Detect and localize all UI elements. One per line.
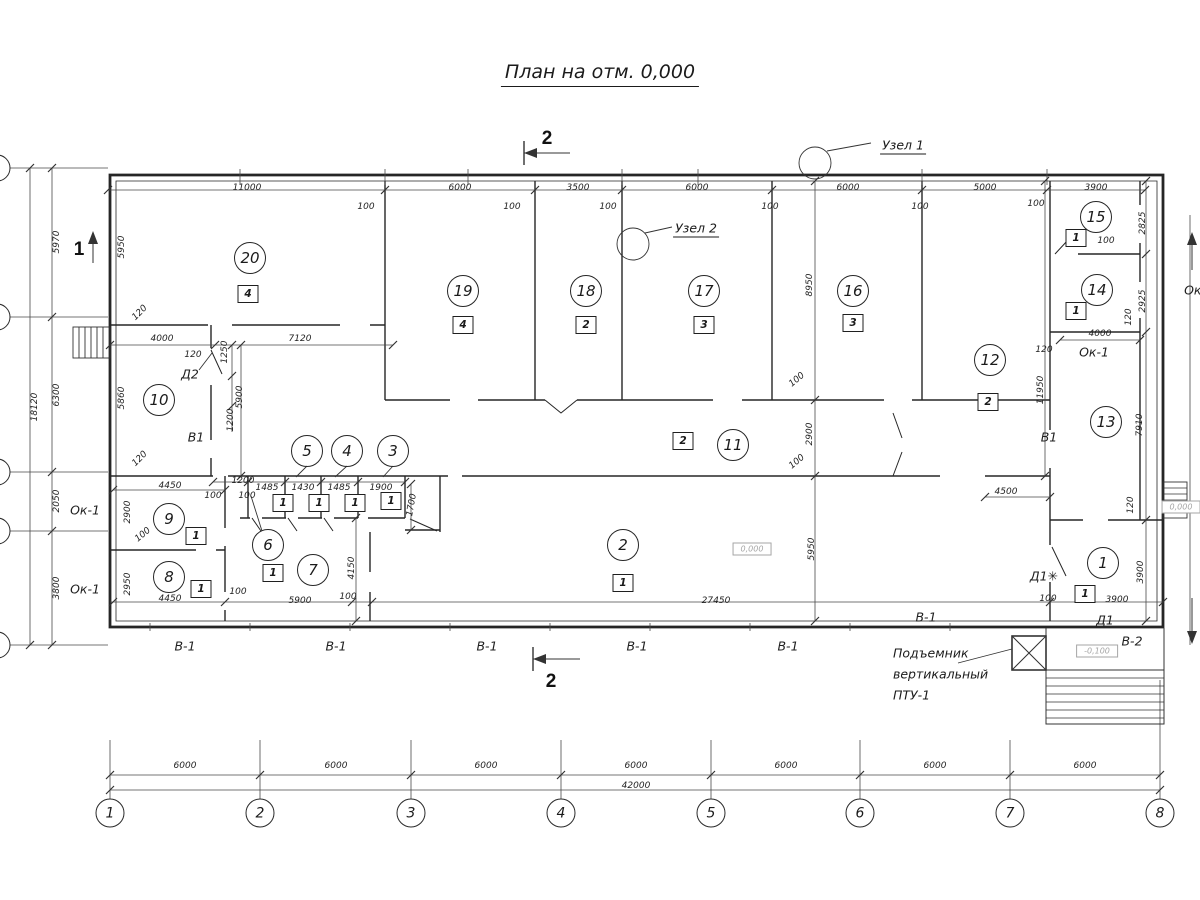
dim-label: 7910 [1135,414,1145,437]
dim-label: 100 [1039,594,1056,604]
dim-label: 4150 [347,557,357,580]
dim-label: 6000 [475,761,498,771]
dim-label: 100 [357,202,374,212]
wall-or-door-tag: В-2 [1121,634,1142,649]
room-number-bubble: 3 [377,435,409,467]
grid-axis-bubble: 1 [96,799,125,828]
room-number-bubble: 4 [331,435,363,467]
drawing-title: План на отм. 0,000 [501,61,699,87]
node-callout-label: Узел 2 [673,221,719,238]
dim-label: 3900 [1136,561,1146,584]
room-number-bubble: 16 [837,275,869,307]
node-callout-label: Узел 1 [880,138,926,155]
wall-or-door-tag: В-1 [626,639,647,654]
room-type-box: 1 [263,564,284,582]
dim-label: 3900 [1106,595,1129,605]
dim-label: 100 [911,202,928,212]
room-number-bubble: 19 [447,275,479,307]
room-number-bubble: 9 [153,503,185,535]
room-number-bubble: 10 [143,384,175,416]
dim-label: 5900 [235,386,245,409]
dim-label: 2900 [805,423,815,446]
dim-label: 4000 [151,334,174,344]
grid-axis-bubble: 6 [846,799,875,828]
dim-label: 27450 [702,596,731,606]
grid-axis-bubble: 8 [1146,799,1175,828]
dim-label: 4450 [159,481,182,491]
dim-label: 5950 [807,538,817,561]
dim-label: 5900 [289,596,312,606]
wall-or-door-tag: В-1 [174,639,195,654]
dim-label: 11000 [233,183,262,193]
dim-label: 6000 [775,761,798,771]
room-type-box: 1 [613,574,634,592]
floorplan-canvas: План на отм. 0,000 110006000350060006000… [0,0,1200,900]
section-mark-number: 1 [74,239,85,261]
room-type-box: 1 [309,494,330,512]
room-type-box: 2 [978,393,999,411]
lift-note-line: вертикальный [893,667,988,682]
room-type-box: 1 [273,494,294,512]
room-number-bubble: 20 [234,242,266,274]
dim-label: 1250 [220,341,230,364]
dim-label: 100 [1097,236,1114,246]
wall-or-door-tag: Ок-1 [1079,345,1109,360]
dim-label: 42000 [622,781,651,791]
dim-label: 2900 [123,501,133,524]
dim-label: 6000 [625,761,648,771]
room-type-box: 2 [576,316,597,334]
room-type-box: 4 [238,285,259,303]
dim-label: 6000 [686,183,709,193]
dim-label: 1200 [232,476,255,486]
grid-axis-bubble: 3 [397,799,426,828]
room-number-bubble: 18 [570,275,602,307]
dim-label: 120 [1124,308,1134,325]
room-type-box: 1 [191,580,212,598]
dim-label: 18120 [30,393,40,422]
wall-or-door-tag: В-1 [777,639,798,654]
dim-label: 7120 [289,334,312,344]
wall-or-door-tag: Д1 [1096,613,1114,628]
room-type-box: 4 [453,316,474,334]
room-number-bubble: 7 [297,554,329,586]
lift-note-line: ПТУ-1 [893,688,930,703]
wall-or-door-tag: Ок-1 [70,582,100,597]
room-type-box: 1 [1066,229,1087,247]
dim-label: 6000 [1074,761,1097,771]
dim-label: 100 [339,592,356,602]
wall-or-door-tag: Д1✳ [1030,569,1058,584]
room-type-box: 2 [673,432,694,450]
dim-label: 2925 [1138,290,1148,313]
room-number-bubble: 12 [974,344,1006,376]
section-mark-number: 2 [546,671,557,693]
wall-or-door-tag: В1 [1041,430,1058,445]
dim-label: 8950 [805,274,815,297]
dim-label: 6000 [174,761,197,771]
room-number-bubble: 11 [717,429,749,461]
lift-note-line: Подъемник [893,646,969,661]
wall-or-door-tag: В1 [188,430,205,445]
room-type-box: 1 [345,494,366,512]
dim-label: 120 [1126,496,1136,513]
room-type-box: 1 [1066,302,1087,320]
wall-or-door-tag: Ок-1 [70,503,100,518]
section-mark-number: 2 [542,128,553,150]
room-type-box: 3 [843,314,864,332]
wall-or-door-tag: Д2 [181,367,199,382]
dim-label: 1430 [292,483,315,493]
room-number-bubble: 6 [252,529,284,561]
dim-label: 4500 [995,487,1018,497]
room-type-box: 3 [694,316,715,334]
dim-label: 5950 [117,236,127,259]
dim-label: 120 [184,350,201,360]
dim-label: 4450 [159,594,182,604]
dim-label: 6300 [52,384,62,407]
elevation-mark: -0,100 [1076,645,1118,658]
dim-label: 1485 [256,483,279,493]
dim-label: 120 [1035,345,1052,355]
dim-label: 3800 [52,577,62,600]
wall-or-door-tag: Ок-1 [1184,283,1200,298]
dim-label: 100 [238,491,255,501]
dim-label: 3500 [567,183,590,193]
grid-axis-bubble: 7 [996,799,1025,828]
dim-label: 5860 [117,387,127,410]
dim-label: 2950 [123,573,133,596]
dim-label: 100 [599,202,616,212]
dim-label: 5970 [52,231,62,254]
dim-label: 100 [1027,199,1044,209]
dim-label: 100 [204,491,221,501]
room-number-bubble: 13 [1090,406,1122,438]
elevation-mark: 0,000 [1162,501,1200,514]
dim-label: 11950 [1036,376,1046,405]
dim-label: 4000 [1089,329,1112,339]
room-number-bubble: 1 [1087,547,1119,579]
grid-axis-bubble: 5 [697,799,726,828]
grid-axis-bubble: 4 [547,799,576,828]
room-number-bubble: 5 [291,435,323,467]
room-number-bubble: 17 [688,275,720,307]
dim-label: 6000 [449,183,472,193]
elevation-mark: 0,000 [733,543,772,556]
grid-axis-bubble: 2 [246,799,275,828]
dim-label: 2825 [1138,212,1148,235]
room-type-box: 1 [1075,585,1096,603]
dim-label: 100 [503,202,520,212]
dim-label: 1485 [328,483,351,493]
room-number-bubble: 8 [153,561,185,593]
dim-label: 6000 [924,761,947,771]
dim-label: 6000 [837,183,860,193]
wall-or-door-tag: В-1 [476,639,497,654]
room-type-box: 1 [186,527,207,545]
room-number-bubble: 2 [607,529,639,561]
dim-label: 100 [229,587,246,597]
dim-label: 3900 [1085,183,1108,193]
wall-or-door-tag: В-1 [915,610,936,625]
wall-or-door-tag: В-1 [325,639,346,654]
dim-label: 5000 [974,183,997,193]
dim-label: 100 [761,202,778,212]
dim-label: 1200 [226,409,236,432]
room-type-box: 1 [381,492,402,510]
dim-label: 2050 [52,490,62,513]
dim-label: 6000 [325,761,348,771]
